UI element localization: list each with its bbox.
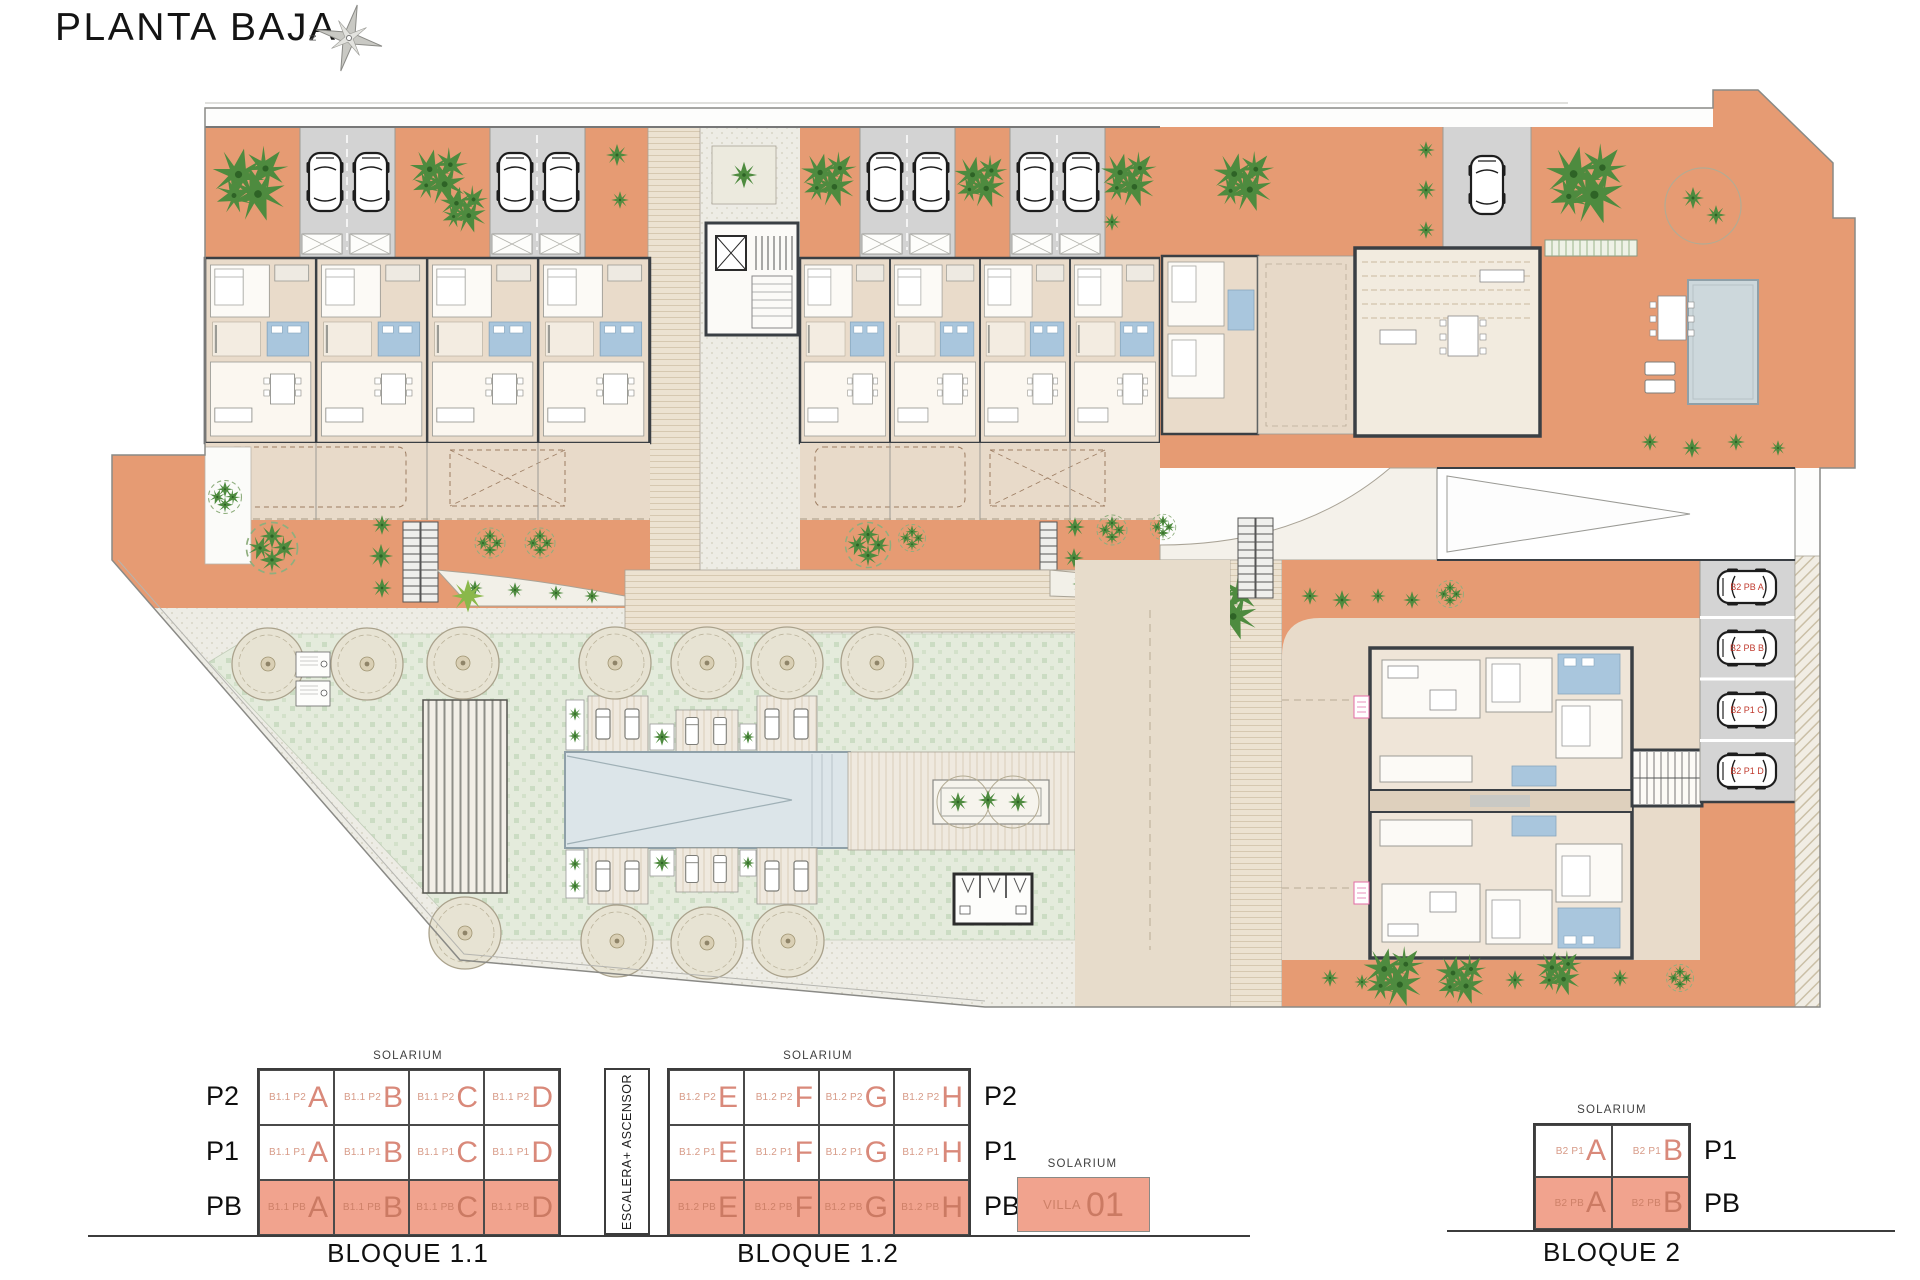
pergola — [423, 700, 507, 893]
round-tree-icon — [331, 628, 403, 700]
escalera-ascensor-box: ESCALERA+ ASCENSOR — [604, 1068, 650, 1235]
floor-label-p2: P2 — [206, 1081, 239, 1112]
legend-cell: B1.2 P2H — [894, 1070, 969, 1125]
bloque12-apartments — [800, 258, 1160, 443]
legend-cell: B1.2 P1F — [744, 1125, 819, 1180]
car-icon — [913, 153, 950, 211]
unit-letter: D — [531, 1193, 553, 1223]
floorplan-page: B2 PB A B2 PB B B2 P1 C B2 P1 D — [0, 0, 1920, 1280]
round-tree-icon — [232, 628, 304, 700]
legend-cell: B1.2 P1G — [819, 1125, 894, 1180]
legend-cell-pb: B1.1 PBC — [409, 1180, 484, 1235]
round-tree-icon — [841, 627, 913, 699]
legend-cell: B1.2 P2G — [819, 1070, 894, 1125]
lounger-icon — [625, 709, 639, 739]
lounger-icon — [596, 709, 610, 739]
lounger-icon — [714, 718, 727, 745]
floor-label-p1: P1 — [1704, 1135, 1737, 1166]
parking-space-label: B2 P1 C — [1730, 705, 1764, 715]
unit-code: B2 PB — [1632, 1198, 1661, 1209]
lounger-icon — [686, 718, 699, 745]
unit-letter: F — [795, 1138, 813, 1168]
unit-letter: H — [941, 1083, 963, 1113]
solarium-label-bloque11: SOLARIUM — [257, 1050, 559, 1062]
stairs-icon — [421, 522, 438, 602]
legend-cell-pb: B1.2 PBE — [669, 1180, 744, 1235]
lounger-icon — [765, 709, 779, 739]
legend-cell-pb: B2 PBA — [1535, 1177, 1612, 1229]
pool-wc-block — [954, 874, 1032, 924]
unit-letter: D — [531, 1138, 553, 1168]
legend-cell: B2 P1A — [1535, 1125, 1612, 1177]
unit-code: B1.2 P2 — [679, 1092, 716, 1103]
legend-cell: B2 P1B — [1612, 1125, 1689, 1177]
unit-code: B1.2 PB — [901, 1202, 939, 1213]
unit-code: B1.2 P1 — [756, 1147, 793, 1158]
solarium-label-villa: SOLARIUM — [1017, 1158, 1148, 1170]
north-label: N — [308, 35, 318, 42]
unit-code: B1.2 P2 — [902, 1092, 939, 1103]
legend-table-bloque12: B1.2 P2E B1.2 P2F B1.2 P2G B1.2 P2H B1.2… — [667, 1068, 971, 1237]
legend-table-bloque2: B2 P1A B2 P1B B2 PBA B2 PBB — [1533, 1123, 1691, 1231]
unit-code: B1.1 P2 — [269, 1092, 306, 1103]
parking-space-label: B2 PB B — [1730, 643, 1764, 653]
title-block: PLANTA BAJA — [55, 6, 338, 50]
unit-letter: G — [865, 1083, 888, 1113]
villa-pool — [1688, 280, 1758, 404]
unit-letter: H — [941, 1138, 963, 1168]
unit-code: B2 PB — [1555, 1198, 1584, 1209]
unit-code: B1.2 P1 — [826, 1147, 863, 1158]
bloque2-title: BLOQUE 2 — [1533, 1237, 1691, 1268]
unit-code: B1.2 P1 — [679, 1147, 716, 1158]
stairs-icon — [403, 522, 420, 602]
car-icon — [307, 153, 344, 211]
floor-label-p1: P1 — [984, 1136, 1017, 1167]
community-pool — [565, 752, 850, 848]
stair-elevator-core — [706, 223, 798, 335]
legend-cell: B1.1 P2A — [259, 1070, 334, 1125]
unit-letter: G — [865, 1138, 888, 1168]
unit-code: B1.1 PB — [343, 1202, 381, 1213]
round-tree-icon — [429, 897, 501, 969]
unit-code: B1.2 P2 — [756, 1092, 793, 1103]
lounger-icon — [625, 861, 639, 891]
legend-cell-pb: B1.1 PBA — [259, 1180, 334, 1235]
unit-letter: E — [718, 1138, 738, 1168]
legend-ground-line — [88, 1235, 1250, 1237]
unit-letter: A — [308, 1083, 328, 1113]
unit-code: B1.1 P1 — [344, 1147, 381, 1158]
floor-label-pb: PB — [1704, 1188, 1740, 1219]
unit-letter: C — [456, 1193, 478, 1223]
legend-cell: B1.1 P1C — [409, 1125, 484, 1180]
legend-cell-pb: B1.1 PBD — [484, 1180, 559, 1235]
bloque2-parking: B2 PB A B2 PB B B2 P1 C B2 P1 D — [1700, 556, 1795, 802]
unit-letter: B — [383, 1083, 403, 1113]
unit-code: B1.1 P2 — [417, 1092, 454, 1103]
unit-letter: B — [383, 1138, 403, 1168]
lounger-icon — [714, 856, 727, 883]
unit-code: B1.1 P2 — [344, 1092, 381, 1103]
bloque12-title: BLOQUE 1.2 — [667, 1238, 969, 1269]
floor-label-pb: PB — [206, 1191, 242, 1222]
unit-letter: C — [456, 1083, 478, 1113]
palm-tree-icon — [1103, 213, 1121, 231]
car-icon — [497, 153, 534, 211]
parking-space-label: B2 P1 D — [1730, 766, 1764, 776]
unit-code: B1.2 PB — [755, 1202, 793, 1213]
unit-code: B1.2 P1 — [902, 1147, 939, 1158]
legend-cell: B1.1 P2D — [484, 1070, 559, 1125]
unit-code: B1.1 P1 — [269, 1147, 306, 1158]
unit-code: B1.1 PB — [416, 1202, 454, 1213]
lounger-icon — [794, 861, 808, 891]
bloque11-apartments — [205, 258, 650, 443]
unit-code: B1.1 P1 — [417, 1147, 454, 1158]
legend-cell-pb: B1.2 PBG — [819, 1180, 894, 1235]
unit-letter: A — [1586, 1188, 1606, 1218]
stairs-icon — [1238, 518, 1255, 598]
villa-legend-box: VILLA 01 — [1017, 1177, 1150, 1232]
palm-tree-icon — [452, 580, 485, 613]
lounger-icon — [686, 856, 699, 883]
unit-code: B1.1 PB — [268, 1202, 306, 1213]
lounger-icon — [794, 709, 808, 739]
unit-letter: F — [795, 1193, 813, 1223]
unit-code: B1.1 PB — [491, 1202, 529, 1213]
legend-cell: B1.2 P1E — [669, 1125, 744, 1180]
legend-cell: B1.1 P1A — [259, 1125, 334, 1180]
unit-letter: B — [1663, 1188, 1683, 1218]
page-title: PLANTA BAJA — [55, 6, 338, 50]
lounger-icon — [765, 861, 779, 891]
round-tree-icon — [579, 627, 651, 699]
north-compass-icon: N — [303, 0, 395, 76]
round-tree-icon — [752, 905, 824, 977]
unit-code: B1.2 P2 — [826, 1092, 863, 1103]
floor-label-pb: PB — [984, 1191, 1020, 1222]
unit-letter: A — [308, 1138, 328, 1168]
lounger-icon — [1645, 362, 1675, 375]
unit-letter: H — [941, 1193, 963, 1223]
floor-label-p2: P2 — [984, 1081, 1017, 1112]
unit-letter: A — [1586, 1136, 1606, 1166]
unit-letter: G — [865, 1193, 888, 1223]
unit-letter: D — [531, 1083, 553, 1113]
legend-cell: B1.1 P1D — [484, 1125, 559, 1180]
legend-cell: B1.2 P1H — [894, 1125, 969, 1180]
parking-space-label: B2 PB A — [1730, 582, 1764, 592]
villa-number: 01 — [1086, 1188, 1124, 1222]
legend-table-bloque11: B1.1 P2A B1.1 P2B B1.1 P2C B1.1 P2D B1.1… — [257, 1068, 561, 1237]
legend-cell-pb: B2 PBB — [1612, 1177, 1689, 1229]
escalera-label: ESCALERA+ ASCENSOR — [620, 1074, 634, 1230]
car-icon — [1469, 156, 1506, 214]
solarium-label-bloque12: SOLARIUM — [667, 1050, 969, 1062]
unit-letter: F — [795, 1083, 813, 1113]
unit-letter: E — [718, 1083, 738, 1113]
legend-cell: B1.2 P2E — [669, 1070, 744, 1125]
unit-code: B1.1 P2 — [492, 1092, 529, 1103]
car-icon — [353, 153, 390, 211]
legend-cell-pb: B1.2 PBF — [744, 1180, 819, 1235]
car-icon — [1063, 153, 1100, 211]
round-tree-icon — [671, 907, 743, 979]
unit-code: B2 P1 — [1556, 1146, 1584, 1157]
legend-cell: B1.1 P2B — [334, 1070, 409, 1125]
palm-tree-icon — [606, 144, 628, 166]
bloque11-title: BLOQUE 1.1 — [257, 1238, 559, 1269]
legend-cell: B1.1 P1B — [334, 1125, 409, 1180]
unit-letter: C — [456, 1138, 478, 1168]
legend-cell: B1.1 P2C — [409, 1070, 484, 1125]
unit-code: B1.2 PB — [678, 1202, 716, 1213]
unit-letter: A — [308, 1193, 328, 1223]
unit-letter: E — [718, 1193, 738, 1223]
unit-code: B2 P1 — [1633, 1146, 1661, 1157]
legend-ground-line — [1447, 1230, 1895, 1232]
legend-cell: B1.2 P2F — [744, 1070, 819, 1125]
driveway-ramp — [1437, 468, 1795, 560]
solarium-label-bloque2: SOLARIUM — [1533, 1104, 1691, 1116]
car-icon — [543, 153, 580, 211]
palm-tree-icon — [611, 191, 629, 209]
villa-code: VILLA — [1043, 1197, 1081, 1212]
round-tree-icon — [671, 627, 743, 699]
stairs-icon — [1256, 518, 1273, 598]
unit-code: B1.2 PB — [825, 1202, 863, 1213]
car-icon — [1017, 153, 1054, 211]
lounger-icon — [596, 861, 610, 891]
round-tree-icon — [427, 627, 499, 699]
unit-letter: B — [383, 1193, 403, 1223]
round-tree-icon — [581, 905, 653, 977]
palm-tree-icon — [731, 162, 757, 188]
lounger-icon — [1645, 380, 1675, 393]
unit-letter: B — [1663, 1136, 1683, 1166]
unit-code: B1.1 P1 — [492, 1147, 529, 1158]
car-icon — [867, 153, 904, 211]
floor-label-p1: P1 — [206, 1136, 239, 1167]
legend-cell-pb: B1.2 PBH — [894, 1180, 969, 1235]
round-tree-icon — [751, 627, 823, 699]
legend-cell-pb: B1.1 PBB — [334, 1180, 409, 1235]
